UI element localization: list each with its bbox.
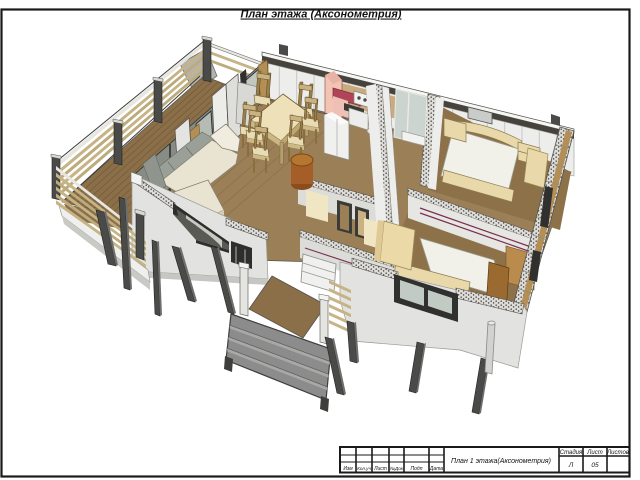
svg-text:План 1 этажа(Аксонометрия): План 1 этажа(Аксонометрия) [451, 458, 551, 465]
svg-text:Подп: Подп [411, 466, 423, 472]
svg-text:План этажа (Аксонометрия): План этажа (Аксонометрия) [241, 9, 402, 21]
svg-text:Л: Л [568, 462, 574, 469]
svg-text:Дата: Дата [429, 466, 443, 472]
svg-text:Кол.уч: Кол.уч [357, 466, 371, 471]
svg-text:Лист: Лист [586, 450, 602, 456]
svg-text:05: 05 [591, 462, 599, 469]
svg-text:Изм: Изм [343, 466, 353, 472]
svg-text:Листов: Листов [606, 450, 629, 456]
svg-text:Лист: Лист [373, 466, 387, 472]
svg-text:Стадия: Стадия [560, 450, 583, 456]
svg-text:№Док: №Док [390, 466, 404, 471]
